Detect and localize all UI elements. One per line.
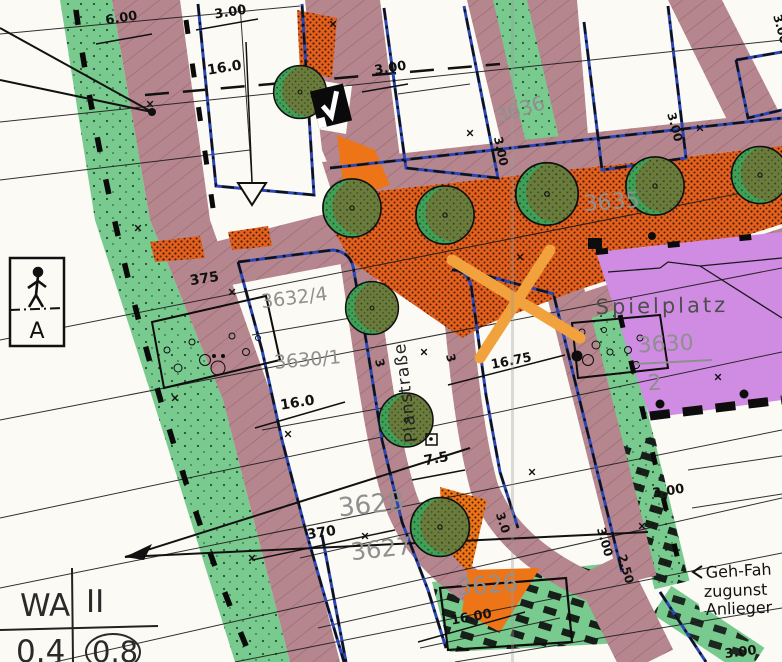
easement-note-line1: Geh-Fah [705,560,772,582]
easement-note-line3: Anlieger [705,598,772,619]
scan-fold-artifact [511,0,514,662]
zoning-plan-map: A 6.00 3.00 16.0 3.00 3636 3.00 3.00 3.0… [0,0,782,662]
zoning-use: WA [20,588,70,624]
pedestrian-sign: A [10,258,64,346]
parcel-3630-denominator: 2 [647,371,662,397]
zoning-storeys: II [86,584,104,620]
zoning-grz: 0.4 [16,634,65,662]
easement-note: Geh-Fah zugunst Anlieger [693,560,773,619]
pedestrian-sign-letter: A [29,319,44,344]
parcel-3630: 3630 [637,331,694,359]
parcel-3635: 3635 [583,188,641,217]
parcel-3626: 3626 [456,569,519,601]
playground-label: Spielplatz [595,293,728,319]
map-canvas: A 6.00 3.00 16.0 3.00 3636 3.00 3.00 3.0… [0,0,782,662]
